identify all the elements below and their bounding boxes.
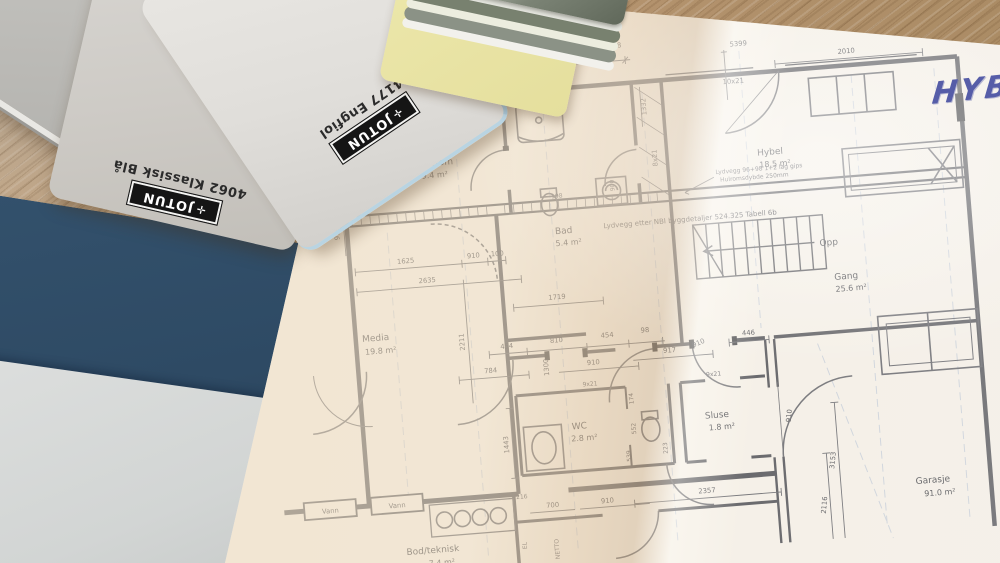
dim: 98 [640, 326, 649, 335]
dim: 784 [484, 366, 498, 375]
label-vann: Vann [322, 506, 339, 515]
door-thresholds [503, 129, 738, 363]
room-name: Garasje [915, 474, 951, 487]
label-el: EL [521, 541, 529, 549]
dim: 810 [550, 336, 564, 345]
dim: 148 [923, 25, 937, 34]
room-name: Bod/teknisk [406, 544, 460, 558]
label-netto: NETTO [553, 538, 562, 559]
dim: 1332 [639, 98, 648, 116]
room-area: 7.4 m² [428, 557, 455, 563]
dim: 1443 [502, 436, 511, 454]
dim: 539 [625, 450, 633, 462]
jotun-brand-text: JOTUN [141, 189, 194, 215]
fixtures [398, 66, 995, 537]
dim: 2116 [820, 496, 830, 514]
dim: 100 [491, 249, 505, 258]
room-name: Hybel [757, 147, 784, 159]
dim: 2010 [837, 47, 855, 56]
jotun-flag-icon: ✛ [194, 202, 207, 217]
desk-scene: 1019 98 855 98 5399 10x21 2010 148 1100 … [0, 0, 1000, 563]
room-name: Sluse [705, 410, 730, 422]
room-name: Gang [834, 271, 859, 283]
dim: 174 [628, 392, 636, 404]
dim: 900 [609, 179, 617, 191]
dim: 5399 [729, 39, 747, 48]
dim: 8x21 [650, 149, 659, 167]
dim: 910 [587, 358, 601, 367]
dim: 700 [546, 501, 560, 510]
room-name: Bad [555, 226, 573, 237]
dim: 2635 [418, 276, 436, 285]
dim: 3153 [828, 451, 838, 469]
room-name: Media [362, 333, 390, 345]
room-area: 91.0 m² [924, 487, 956, 498]
dim: 198 [551, 192, 563, 200]
dim: 1719 [548, 293, 566, 302]
room-name: WC [571, 421, 587, 432]
dim: 454 [600, 331, 614, 340]
stair-direction-label: Opp [819, 238, 839, 249]
room-area: 1.8 m² [708, 421, 735, 432]
dim: 216 [516, 493, 528, 501]
dim: 1300 [542, 358, 551, 376]
plan-annotations: Lydvegg 96+98 1+2 lag gips Hulromsdybde … [600, 162, 807, 230]
dim: 910 [601, 496, 615, 505]
dim: 910 [785, 409, 794, 423]
dim: 552 [630, 422, 638, 434]
dim: 10x21 [722, 77, 744, 87]
label-vann: Vann [388, 501, 405, 510]
dim: 2357 [698, 486, 716, 495]
dim: 9x21 [582, 380, 598, 388]
room-area: 25.6 m² [835, 282, 867, 293]
room-area: 2.8 m² [571, 432, 598, 443]
dim: 1625 [397, 257, 415, 266]
dim: 2211 [458, 333, 467, 351]
staircase [693, 215, 827, 279]
dim: 910 [467, 251, 481, 260]
room-area: 5.4 m² [555, 237, 582, 248]
dim: 223 [662, 442, 670, 454]
dim: 446 [742, 329, 756, 338]
dim: 9x21 [706, 370, 722, 378]
lydvegg-wall-note: Lydvegg etter NBI byggdetaljer 524.325 T… [603, 208, 777, 230]
dim: 910 [691, 337, 706, 349]
dim: 454 [500, 342, 514, 351]
dim: 917 [663, 346, 677, 355]
room-area: 19.8 m² [365, 345, 397, 356]
